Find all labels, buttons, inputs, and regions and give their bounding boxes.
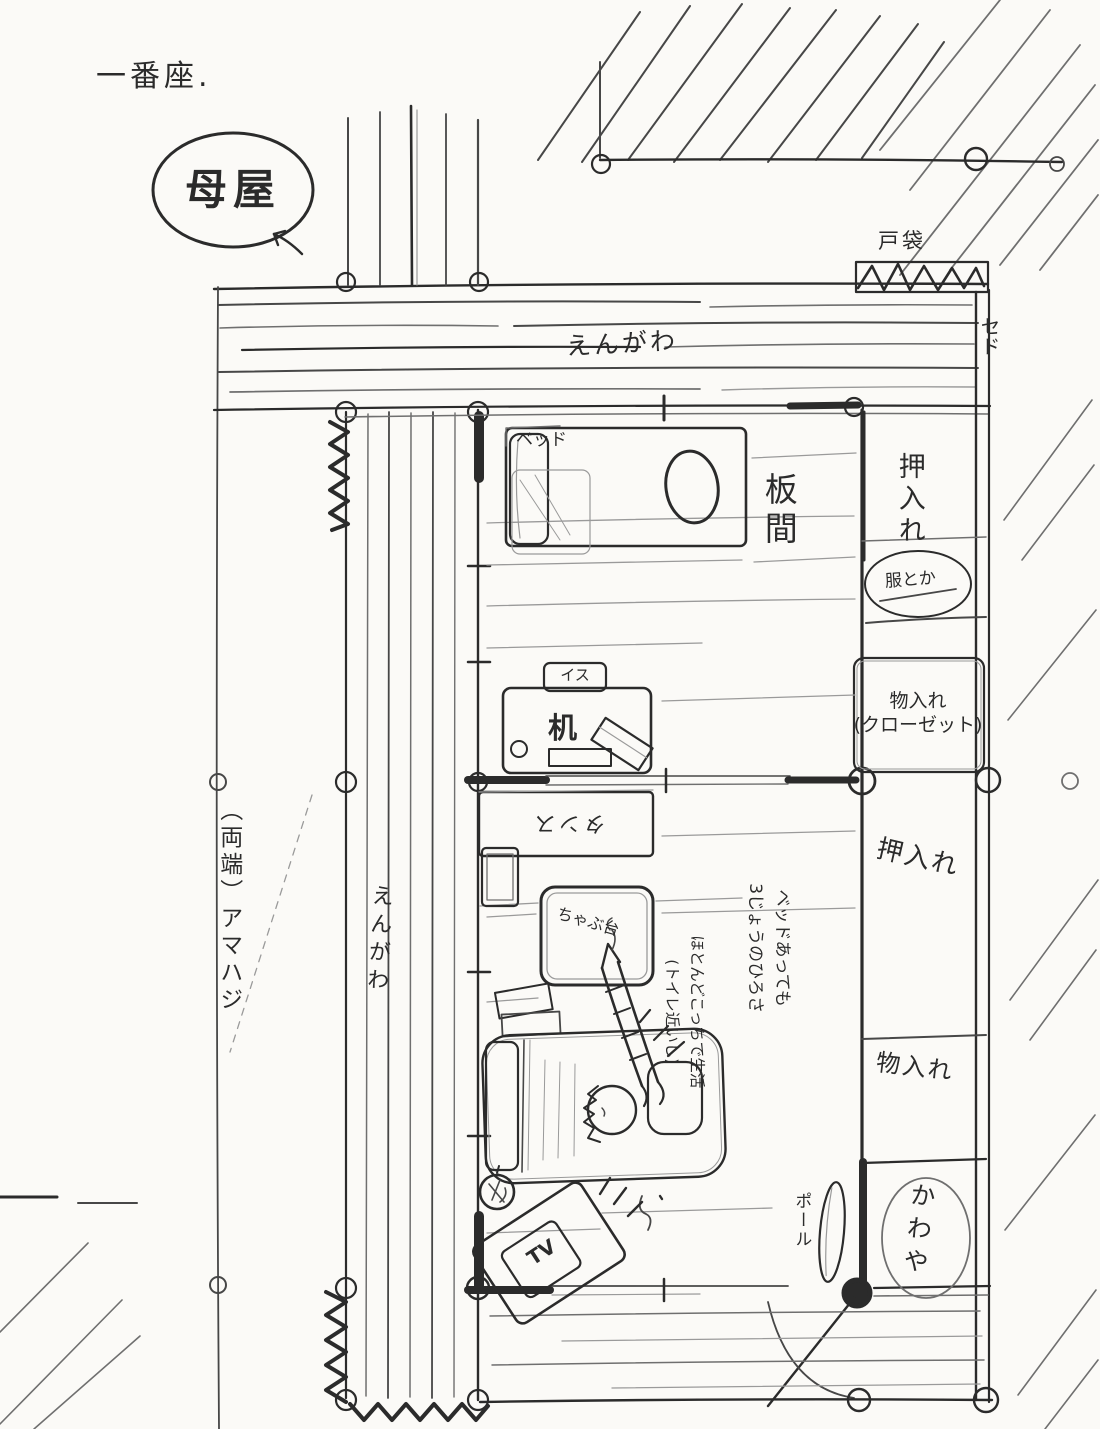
round-object <box>480 1166 514 1209</box>
label-isu: イス <box>549 666 601 685</box>
page-title: 一番座. <box>96 58 212 96</box>
futon-pillow <box>486 1042 518 1170</box>
label-pole: ポール <box>790 1192 811 1249</box>
label-oshiire-top: 押入れ <box>892 452 926 548</box>
label-tobukuro: 戸袋 <box>878 228 926 254</box>
label-ryotan-amahaji: （両端）アマハジ <box>214 798 243 1014</box>
note-bed-space: ベッドあっても 3じょうのひろさ <box>741 853 795 1043</box>
closets <box>816 537 986 1298</box>
bed-cushion <box>661 448 723 527</box>
note-living-here: ほとんどこっちで生活 (トイレ近いし) <box>659 892 709 1132</box>
label-main-house: 母屋 <box>173 164 293 217</box>
chabudai-table <box>541 887 653 985</box>
label-tansu: タンス <box>498 810 638 836</box>
label-tsukue: 机 <box>548 710 577 746</box>
label-itanoma: 板間 <box>758 472 799 550</box>
label-fuku-toka: 服とか <box>884 568 936 593</box>
floorplan-sketch: 一番座. 母屋 戸袋 セド えんがわ 押入れ 服とか 板間 ベッド 物入れ (ク… <box>0 0 1100 1429</box>
label-monoire-closet: 物入れ (クローゼット) <box>852 690 984 738</box>
label-bed: ベッド <box>516 430 567 451</box>
cushions <box>495 984 561 1037</box>
tobukuro-box <box>856 262 988 292</box>
pole-shape <box>816 1181 849 1283</box>
label-engawa-top: えんがわ <box>565 325 678 362</box>
label-sedo: セド <box>976 316 1001 356</box>
label-engawa-side: えんがわ <box>361 883 394 996</box>
